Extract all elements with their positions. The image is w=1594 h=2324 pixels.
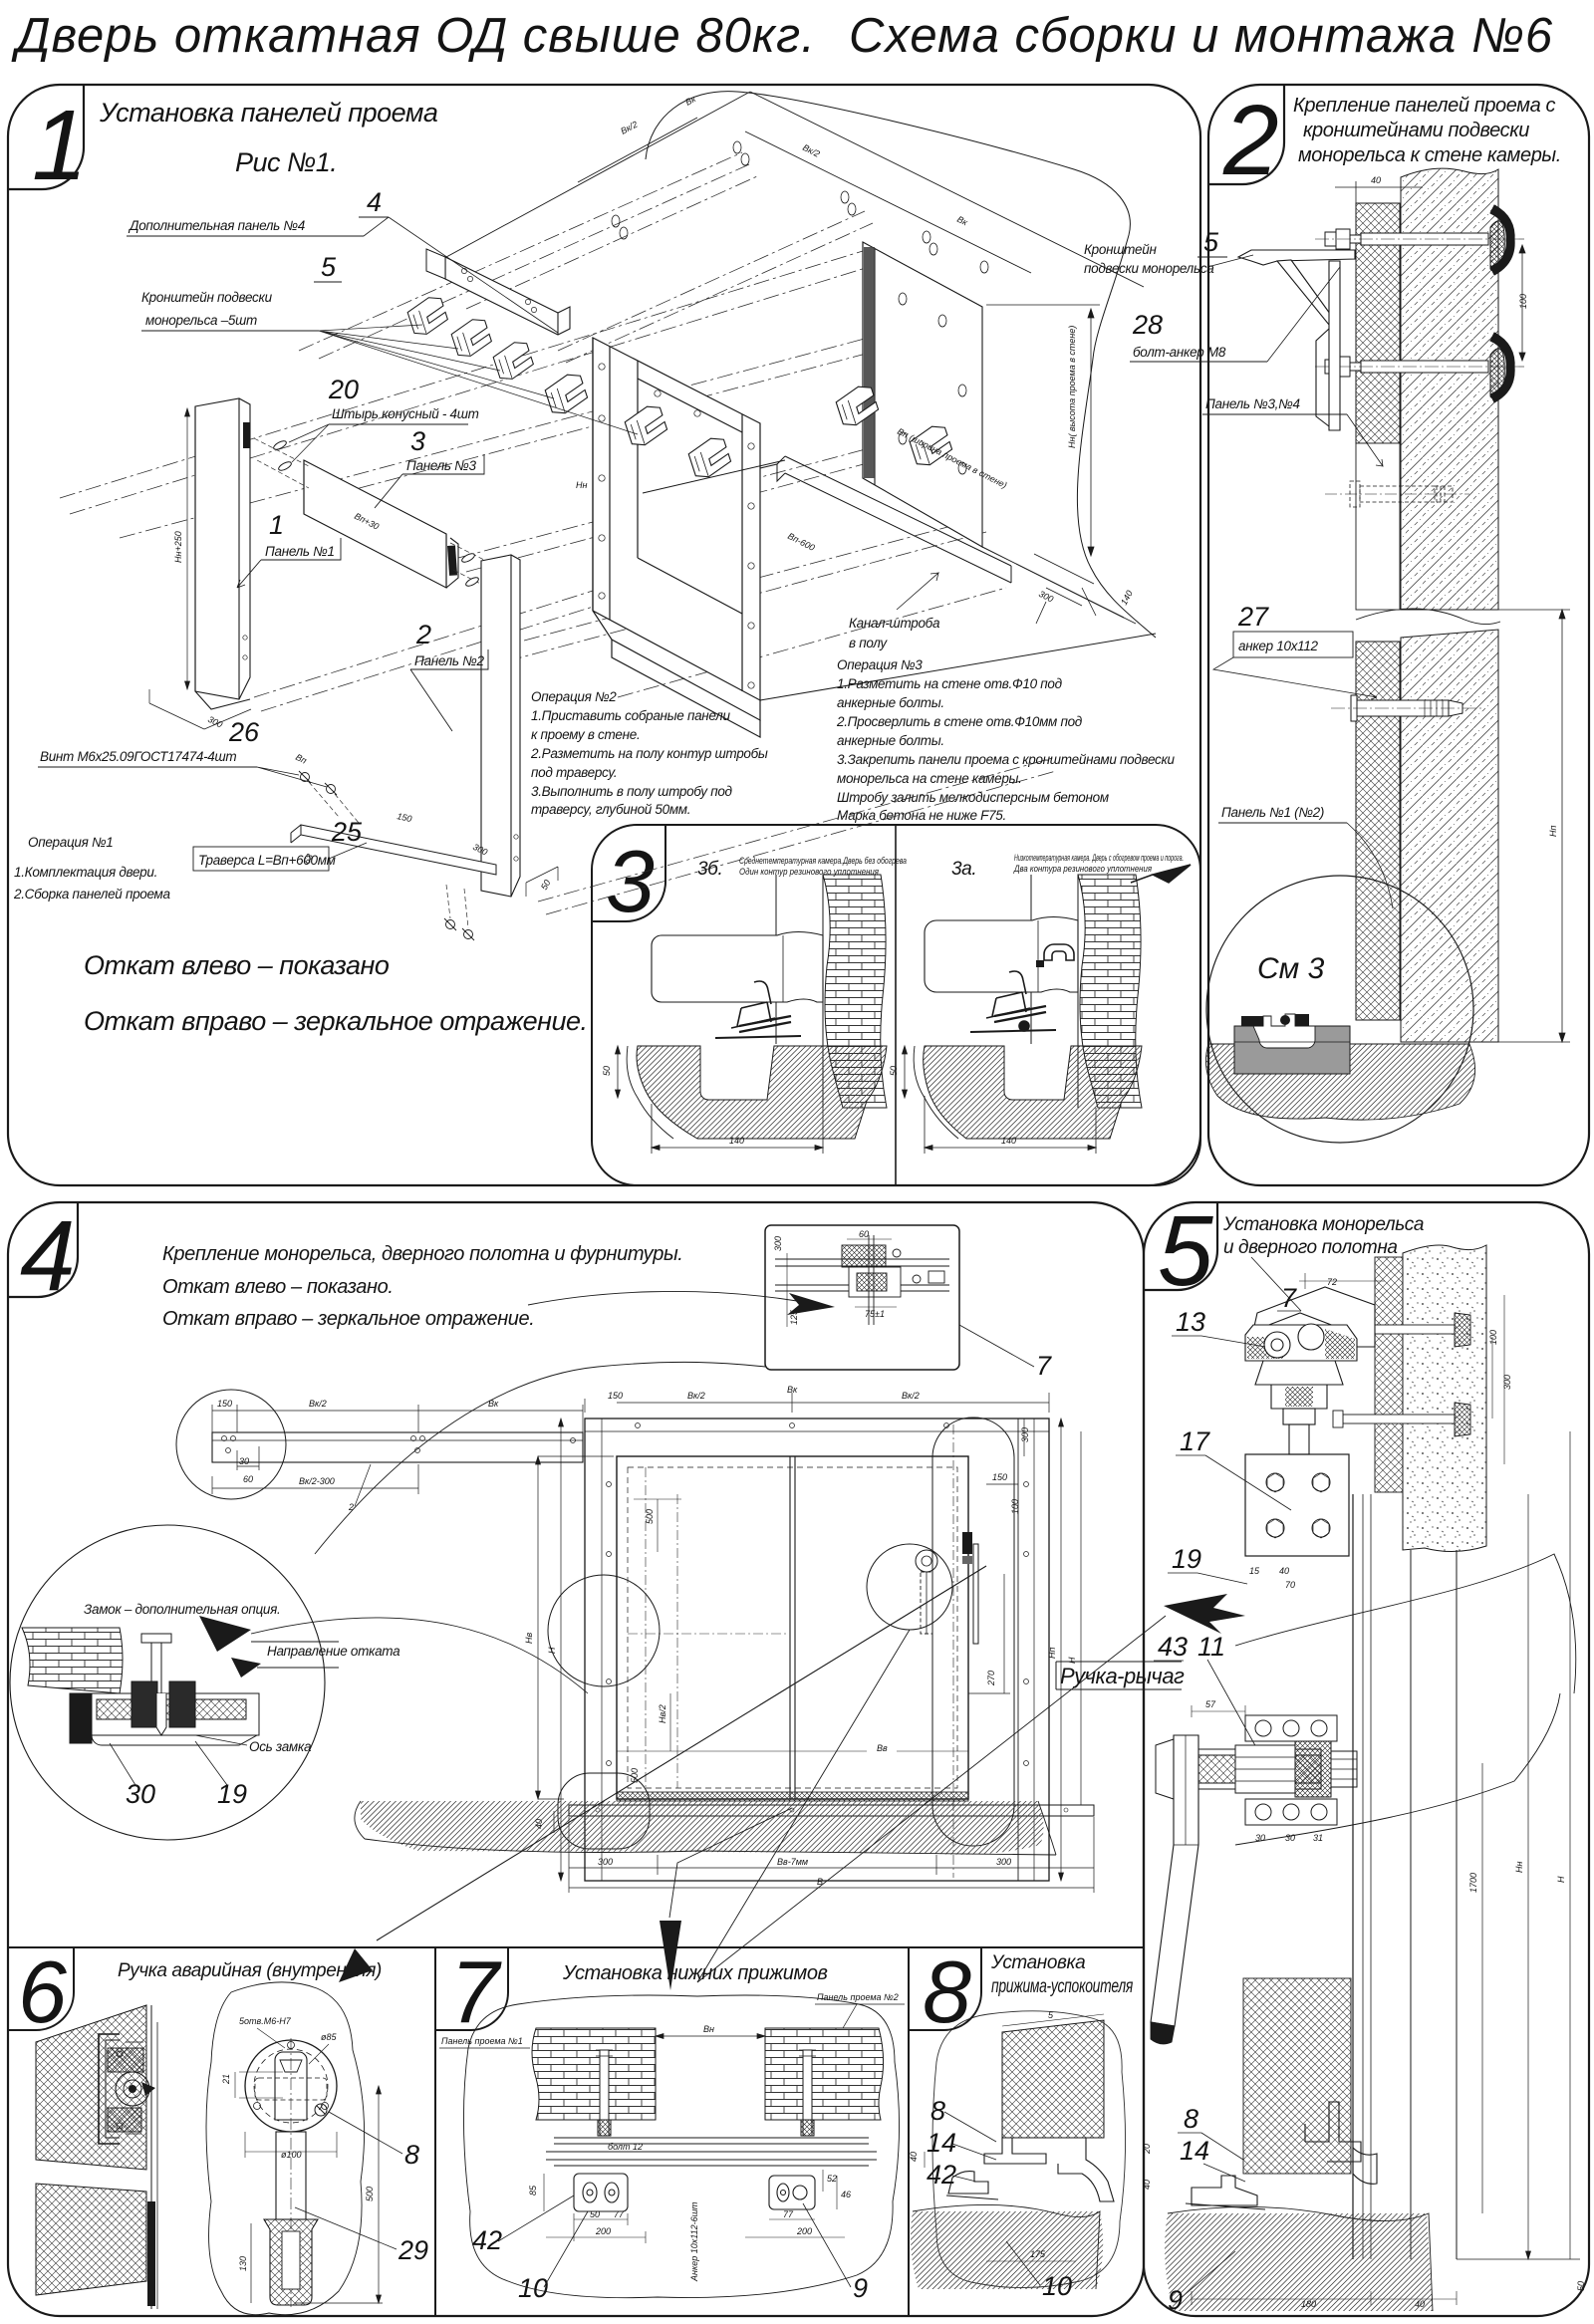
svg-text:180: 180 (1301, 2299, 1316, 2309)
svg-text:Среднетемпературная камера.Две: Среднетемпературная камера.Дверь без обо… (739, 856, 907, 866)
svg-text:Вк/2-300: Вк/2-300 (299, 1476, 335, 1486)
svg-text:25: 25 (331, 817, 363, 847)
svg-text:Панель №3: Панель №3 (406, 458, 476, 473)
svg-text:Анкер 10х112-6шт: Анкер 10х112-6шт (689, 2201, 699, 2282)
svg-text:Панель проема №1: Панель проема №1 (441, 2036, 523, 2046)
svg-text:85: 85 (528, 2185, 538, 2195)
svg-text:300: 300 (996, 1857, 1011, 1867)
svg-text:Откат вправо – зеркальное отра: Откат вправо – зеркальное отражение. (162, 1308, 534, 1330)
svg-text:3б.: 3б. (697, 859, 722, 880)
svg-text:Операция №1: Операция №1 (28, 835, 113, 850)
svg-text:30: 30 (1285, 1833, 1295, 1843)
svg-text:Вк: Вк (488, 1399, 499, 1409)
svg-text:Нп: Нп (1047, 1648, 1057, 1659)
svg-text:30: 30 (239, 1456, 249, 1466)
svg-text:Марка бетона не ниже F75.: Марка бетона не ниже F75. (837, 808, 1006, 823)
svg-text:15: 15 (1249, 1566, 1260, 1576)
svg-text:26: 26 (228, 717, 260, 747)
svg-text:Н: Н (1067, 1657, 1077, 1664)
svg-text:30: 30 (126, 1779, 155, 1809)
svg-text:20: 20 (1142, 2144, 1152, 2155)
svg-text:Ручка-рычаг: Ручка-рычаг (1060, 1664, 1185, 1688)
svg-text:Вк/2: Вк/2 (687, 1391, 705, 1401)
svg-text:в полу: в полу (849, 636, 888, 650)
svg-text:77: 77 (614, 2209, 625, 2219)
svg-text:4: 4 (367, 187, 382, 217)
svg-text:8: 8 (1184, 2104, 1198, 2134)
svg-text:2: 2 (1222, 85, 1279, 196)
svg-text:42: 42 (927, 2160, 956, 2190)
svg-text:Нп: Нп (1548, 826, 1558, 837)
svg-text:28: 28 (1132, 310, 1163, 340)
svg-text:40: 40 (909, 2152, 919, 2162)
svg-text:Вн: Вн (703, 2024, 714, 2034)
svg-text:монорельса к стене камеры.: монорельса к стене камеры. (1298, 144, 1561, 166)
svg-text:14: 14 (927, 2128, 956, 2158)
svg-text:Откат влево – показано.: Откат влево – показано. (162, 1276, 393, 1298)
svg-text:5: 5 (1203, 227, 1219, 257)
svg-text:42: 42 (472, 2225, 502, 2255)
svg-text:5: 5 (321, 252, 337, 282)
svg-text:7: 7 (1036, 1351, 1052, 1381)
svg-text:2.Просверлить в стене отв.Ф10м: 2.Просверлить в стене отв.Ф10мм под (836, 714, 1083, 729)
svg-text:40: 40 (1142, 2180, 1152, 2190)
svg-text:60: 60 (243, 1474, 253, 1484)
svg-text:Траверса L=Вп+600мм: Траверса L=Вп+600мм (198, 853, 336, 868)
svg-text:Н: Н (1556, 1876, 1566, 1883)
svg-text:27: 27 (1237, 602, 1269, 632)
svg-text:7: 7 (450, 1942, 502, 2041)
svg-text:8: 8 (404, 2140, 419, 2170)
svg-text:Установка: Установка (990, 1952, 1085, 1973)
svg-text:19: 19 (1172, 1544, 1201, 1574)
svg-text:13: 13 (1176, 1307, 1205, 1337)
svg-text:и дверного полотна: и дверного полотна (1223, 1237, 1398, 1258)
svg-text:1: 1 (269, 510, 284, 540)
svg-text:60: 60 (859, 1229, 869, 1239)
svg-text:130: 130 (238, 2256, 248, 2271)
svg-text:ø100: ø100 (281, 2150, 302, 2160)
svg-text:Кронштейн: Кронштейн (1084, 242, 1157, 257)
svg-text:3.Закрепить панели проема с кр: 3.Закрепить панели проема с кронштейнами… (837, 752, 1176, 767)
svg-text:2: 2 (348, 1502, 354, 1512)
svg-text:Установка нижних прижимов: Установка нижних прижимов (562, 1962, 828, 1984)
svg-text:100: 100 (1518, 294, 1528, 309)
svg-text:52: 52 (827, 2174, 837, 2184)
svg-text:3: 3 (606, 832, 655, 930)
svg-text:Н: Н (547, 1647, 557, 1654)
svg-text:Операция №3: Операция №3 (837, 657, 923, 672)
svg-text:9: 9 (1168, 2285, 1183, 2315)
svg-text:2: 2 (415, 620, 431, 649)
svg-text:Откат вправо – зеркальное отра: Откат вправо – зеркальное отражение. (84, 1006, 588, 1036)
svg-text:Панель проема №2: Панель проема №2 (817, 1992, 899, 2002)
svg-text:Нн: Нн (1514, 1862, 1524, 1873)
svg-text:2.Разметить на полу контур штр: 2.Разметить на полу контур штробы (530, 746, 768, 761)
svg-text:прижима-успокоителя: прижима-успокоителя (991, 1976, 1133, 1997)
svg-text:Штробу залить мелкодисперсным: Штробу залить мелкодисперсным бетоном (837, 790, 1109, 805)
svg-text:500: 500 (630, 1768, 640, 1783)
svg-text:500: 500 (645, 1509, 655, 1524)
svg-text:10: 10 (1042, 2271, 1072, 2301)
svg-text:монорельса на стене камеры.: монорельса на стене камеры. (837, 771, 1022, 786)
svg-text:1.Комплектация двери.: 1.Комплектация двери. (14, 865, 157, 880)
svg-text:анкер 10х112: анкер 10х112 (1238, 639, 1319, 653)
svg-text:75±1: 75±1 (865, 1309, 885, 1319)
svg-text:50: 50 (602, 1066, 612, 1076)
svg-text:анкерные болты.: анкерные болты. (837, 695, 944, 710)
svg-text:40: 40 (1415, 2299, 1425, 2309)
svg-text:14: 14 (1180, 2136, 1209, 2166)
svg-text:монорельса –5шт: монорельса –5шт (145, 313, 257, 328)
svg-text:Канал-штроба: Канал-штроба (849, 616, 940, 631)
svg-text:Панель №3,№4: Панель №3,№4 (1205, 396, 1300, 411)
svg-text:Вк/2: Вк/2 (902, 1391, 920, 1401)
svg-text:Винт М6х25.09ГОСТ17474-4шт: Винт М6х25.09ГОСТ17474-4шт (40, 749, 236, 764)
svg-text:Вк/2: Вк/2 (309, 1399, 327, 1409)
svg-text:20: 20 (328, 375, 359, 404)
svg-text:2.Сборка панелей проема: 2.Сборка панелей проема (13, 887, 171, 902)
svg-text:3: 3 (410, 426, 425, 456)
svg-text:кронштейнами подвески: кронштейнами подвески (1303, 120, 1529, 141)
svg-text:77: 77 (783, 2209, 794, 2219)
svg-text:200: 200 (796, 2226, 812, 2236)
svg-text:50: 50 (590, 2209, 600, 2219)
svg-text:43: 43 (1158, 1632, 1188, 1662)
svg-text:8: 8 (930, 2096, 945, 2126)
svg-text:175: 175 (1030, 2249, 1046, 2259)
svg-text:1700: 1700 (1468, 1873, 1478, 1893)
svg-text:Вк: Вк (787, 1385, 798, 1395)
svg-text:Дополнительная панель №4: Дополнительная панель №4 (128, 218, 305, 233)
svg-text:17: 17 (1180, 1426, 1210, 1456)
svg-text:9: 9 (853, 2273, 868, 2303)
svg-text:11: 11 (1197, 1632, 1225, 1662)
svg-text:40: 40 (1371, 175, 1381, 185)
svg-text:траверсу, глубиной 50мм.: траверсу, глубиной 50мм. (531, 802, 690, 817)
svg-text:1.Приставить собраные панели: 1.Приставить собраные панели (531, 708, 730, 723)
svg-text:Установка монорельса: Установка монорельса (1222, 1214, 1424, 1235)
svg-text:анкерные болты.: анкерные болты. (837, 733, 944, 748)
svg-text:19: 19 (217, 1779, 247, 1809)
svg-text:100: 100 (1488, 1330, 1498, 1345)
svg-text:150: 150 (608, 1391, 623, 1401)
svg-text:Замок – дополнительная опция.: Замок – дополнительная опция. (84, 1602, 280, 1617)
svg-text:под траверсу.: под траверсу. (531, 765, 617, 780)
svg-text:Нв: Нв (524, 1633, 534, 1644)
svg-text:100: 100 (1010, 1499, 1020, 1514)
svg-text:Крепление панелей проема с: Крепление панелей проема с (1293, 95, 1555, 117)
svg-text:300: 300 (1502, 1375, 1512, 1390)
svg-text:Направление отката: Направление отката (267, 1644, 400, 1659)
svg-text:6: 6 (18, 1942, 67, 2041)
svg-text:150: 150 (992, 1472, 1007, 1482)
svg-text:3.Выполнить в полу штробу под: 3.Выполнить в полу штробу под (531, 784, 733, 799)
svg-text:46: 46 (841, 2190, 851, 2199)
svg-text:См 3: См 3 (1257, 952, 1325, 985)
svg-text:10: 10 (518, 2273, 548, 2303)
svg-text:подвески монорельса: подвески монорельса (1084, 261, 1214, 276)
svg-text:50: 50 (889, 1066, 899, 1076)
svg-text:21: 21 (221, 2074, 231, 2085)
svg-text:300: 300 (773, 1236, 783, 1251)
svg-text:Схема сборки и монтажа №6: Схема сборки и монтажа №6 (849, 9, 1553, 63)
svg-text:4: 4 (20, 1200, 76, 1312)
svg-text:Ось замка: Ось замка (249, 1739, 312, 1754)
svg-text:29: 29 (398, 2235, 428, 2265)
svg-text:Рис №1.: Рис №1. (235, 147, 337, 177)
svg-text:Панель №2: Панель №2 (414, 653, 484, 668)
svg-text:57: 57 (1205, 1699, 1216, 1709)
svg-text:40: 40 (1279, 1566, 1289, 1576)
svg-text:300: 300 (1020, 1427, 1030, 1442)
svg-text:Два контура резинового уплотне: Два контура резинового уплотнения (1013, 864, 1152, 874)
svg-text:Панель №1 (№2): Панель №1 (№2) (1221, 805, 1324, 820)
svg-text:Дверь откатная ОД свыше 80кг.: Дверь откатная ОД свыше 80кг. (11, 9, 816, 63)
svg-text:5отв.М6-Н7: 5отв.М6-Н7 (239, 2016, 292, 2026)
svg-text:Нв/2: Нв/2 (658, 1704, 667, 1723)
svg-text:Нн( высота проема в стене): Нн( высота проема в стене) (1067, 326, 1077, 448)
svg-text:Вв-7мм: Вв-7мм (777, 1857, 808, 1867)
svg-text:Установка панелей проема: Установка панелей проема (99, 98, 438, 128)
svg-text:50: 50 (1576, 2281, 1586, 2291)
svg-text:300: 300 (598, 1857, 613, 1867)
svg-text:Низкотемпературная камера. Две: Низкотемпературная камера. Дверь с обогр… (1014, 853, 1184, 863)
svg-text:болт-анкер М8: болт-анкер М8 (1133, 345, 1226, 360)
svg-text:5: 5 (1158, 1195, 1213, 1307)
svg-text:ø85: ø85 (321, 2032, 338, 2042)
svg-text:Откат влево – показано: Откат влево – показано (84, 950, 390, 980)
svg-text:140: 140 (1001, 1136, 1016, 1146)
svg-text:140: 140 (729, 1136, 744, 1146)
svg-text:200: 200 (595, 2226, 611, 2236)
svg-text:Штырь конусный - 4шт: Штырь конусный - 4шт (332, 406, 479, 421)
svg-text:3а.: 3а. (951, 859, 976, 880)
svg-text:8: 8 (923, 1942, 971, 2041)
svg-text:Крепление монорельса, дверного: Крепление монорельса, дверного полотна и… (162, 1243, 682, 1265)
svg-text:Вв: Вв (877, 1743, 888, 1753)
svg-text:500: 500 (365, 2187, 375, 2201)
svg-text:Кронштейн подвески: Кронштейн подвески (141, 290, 273, 305)
svg-text:к проему в стене.: к проему в стене. (531, 727, 640, 742)
svg-text:Операция №2: Операция №2 (531, 689, 617, 704)
svg-text:31: 31 (1313, 1833, 1323, 1843)
svg-text:270: 270 (986, 1671, 996, 1686)
svg-text:40: 40 (534, 1819, 544, 1829)
svg-text:72: 72 (1327, 1277, 1337, 1287)
svg-text:Нн+250: Нн+250 (173, 531, 183, 563)
svg-text:150: 150 (217, 1399, 232, 1409)
svg-text:Панель №1: Панель №1 (265, 544, 335, 559)
svg-text:Нн: Нн (576, 480, 587, 490)
svg-text:70: 70 (1285, 1580, 1295, 1590)
svg-text:болт 12: болт 12 (608, 2142, 643, 2152)
svg-text:1.Разметить на стене отв.Ф10 п: 1.Разметить на стене отв.Ф10 под (837, 676, 1063, 691)
svg-text:1: 1 (32, 90, 88, 201)
